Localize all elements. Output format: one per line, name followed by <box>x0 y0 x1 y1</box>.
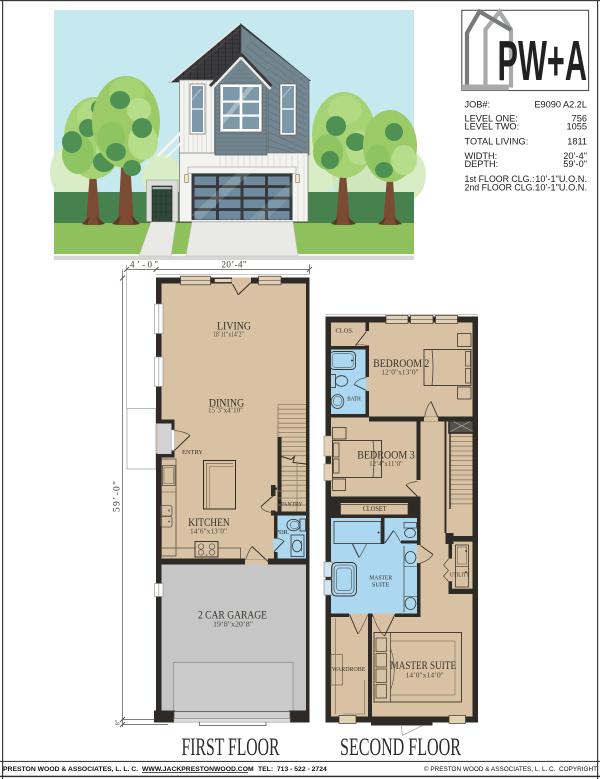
svg-text:1811: 1811 <box>567 137 587 147</box>
svg-text:CLOS.: CLOS. <box>336 328 354 335</box>
svg-text:18’11"x14’2": 18’11"x14’2" <box>213 330 244 338</box>
svg-text:PW+A: PW+A <box>498 29 588 93</box>
svg-text:ENTRY: ENTRY <box>182 449 203 456</box>
svg-text:PDR.: PDR. <box>276 529 290 536</box>
svg-text:BATH: BATH <box>347 395 361 402</box>
svg-text:15’3"x4’10": 15’3"x4’10" <box>208 407 243 415</box>
svg-text:1055: 1055 <box>567 121 587 131</box>
svg-text:10’-1"U.O.N.: 10’-1"U.O.N. <box>535 182 587 192</box>
svg-text:DEPTH:: DEPTH: <box>465 159 499 169</box>
svg-text:19’8"x20’8": 19’8"x20’8" <box>213 621 253 629</box>
svg-text:WWW.JACKPRESTONWOOD.COM: WWW.JACKPRESTONWOOD.COM <box>142 766 254 773</box>
svg-text:LEVEL TWO:: LEVEL TWO: <box>465 121 520 131</box>
svg-text:FIRST FLOOR: FIRST FLOOR <box>182 732 280 761</box>
svg-text:8": 8" <box>116 719 122 725</box>
svg-text:4’-0": 4’-0" <box>130 259 158 269</box>
svg-text:© PRESTON WOOD & ASSOCIATES, L: © PRESTON WOOD & ASSOCIATES, L. L. C. CO… <box>424 765 597 773</box>
svg-text:PANTRY: PANTRY <box>281 501 303 508</box>
svg-text:TEL: 713 - 522 - 2724: TEL: 713 - 522 - 2724 <box>258 766 327 773</box>
svg-text:SECOND FLOOR: SECOND FLOOR <box>340 732 461 761</box>
svg-text:PRESTON WOOD & ASSOCIATES, L.: PRESTON WOOD & ASSOCIATES, L. L. C. <box>3 766 138 773</box>
svg-text:14’0"x14’0": 14’0"x14’0" <box>405 671 444 679</box>
svg-text:20’-4": 20’-4" <box>222 259 247 269</box>
svg-text:TOTAL LIVING:: TOTAL LIVING: <box>465 137 529 147</box>
svg-text:SUITE: SUITE <box>372 581 390 588</box>
svg-text:14’6"x13’0": 14’6"x13’0" <box>190 527 227 535</box>
svg-text:2 CAR GARAGE: 2 CAR GARAGE <box>198 608 267 622</box>
svg-text:UTILITY: UTILITY <box>450 572 470 579</box>
svg-text:WARDROBE: WARDROBE <box>332 666 366 673</box>
svg-text:2nd FLOOR CLG.:: 2nd FLOOR CLG.: <box>465 182 538 192</box>
svg-text:CLOSET: CLOSET <box>363 506 388 513</box>
svg-text:MASTER SUITE: MASTER SUITE <box>391 658 457 672</box>
svg-text:12’4"x11’0": 12’4"x11’0" <box>369 460 403 468</box>
svg-text:59’-0": 59’-0" <box>563 159 587 169</box>
svg-text:E9090 A2.2L: E9090 A2.2L <box>534 99 587 109</box>
svg-text:12’0"x13’0": 12’0"x13’0" <box>381 369 419 377</box>
svg-text:JOB#:: JOB#: <box>465 99 491 109</box>
